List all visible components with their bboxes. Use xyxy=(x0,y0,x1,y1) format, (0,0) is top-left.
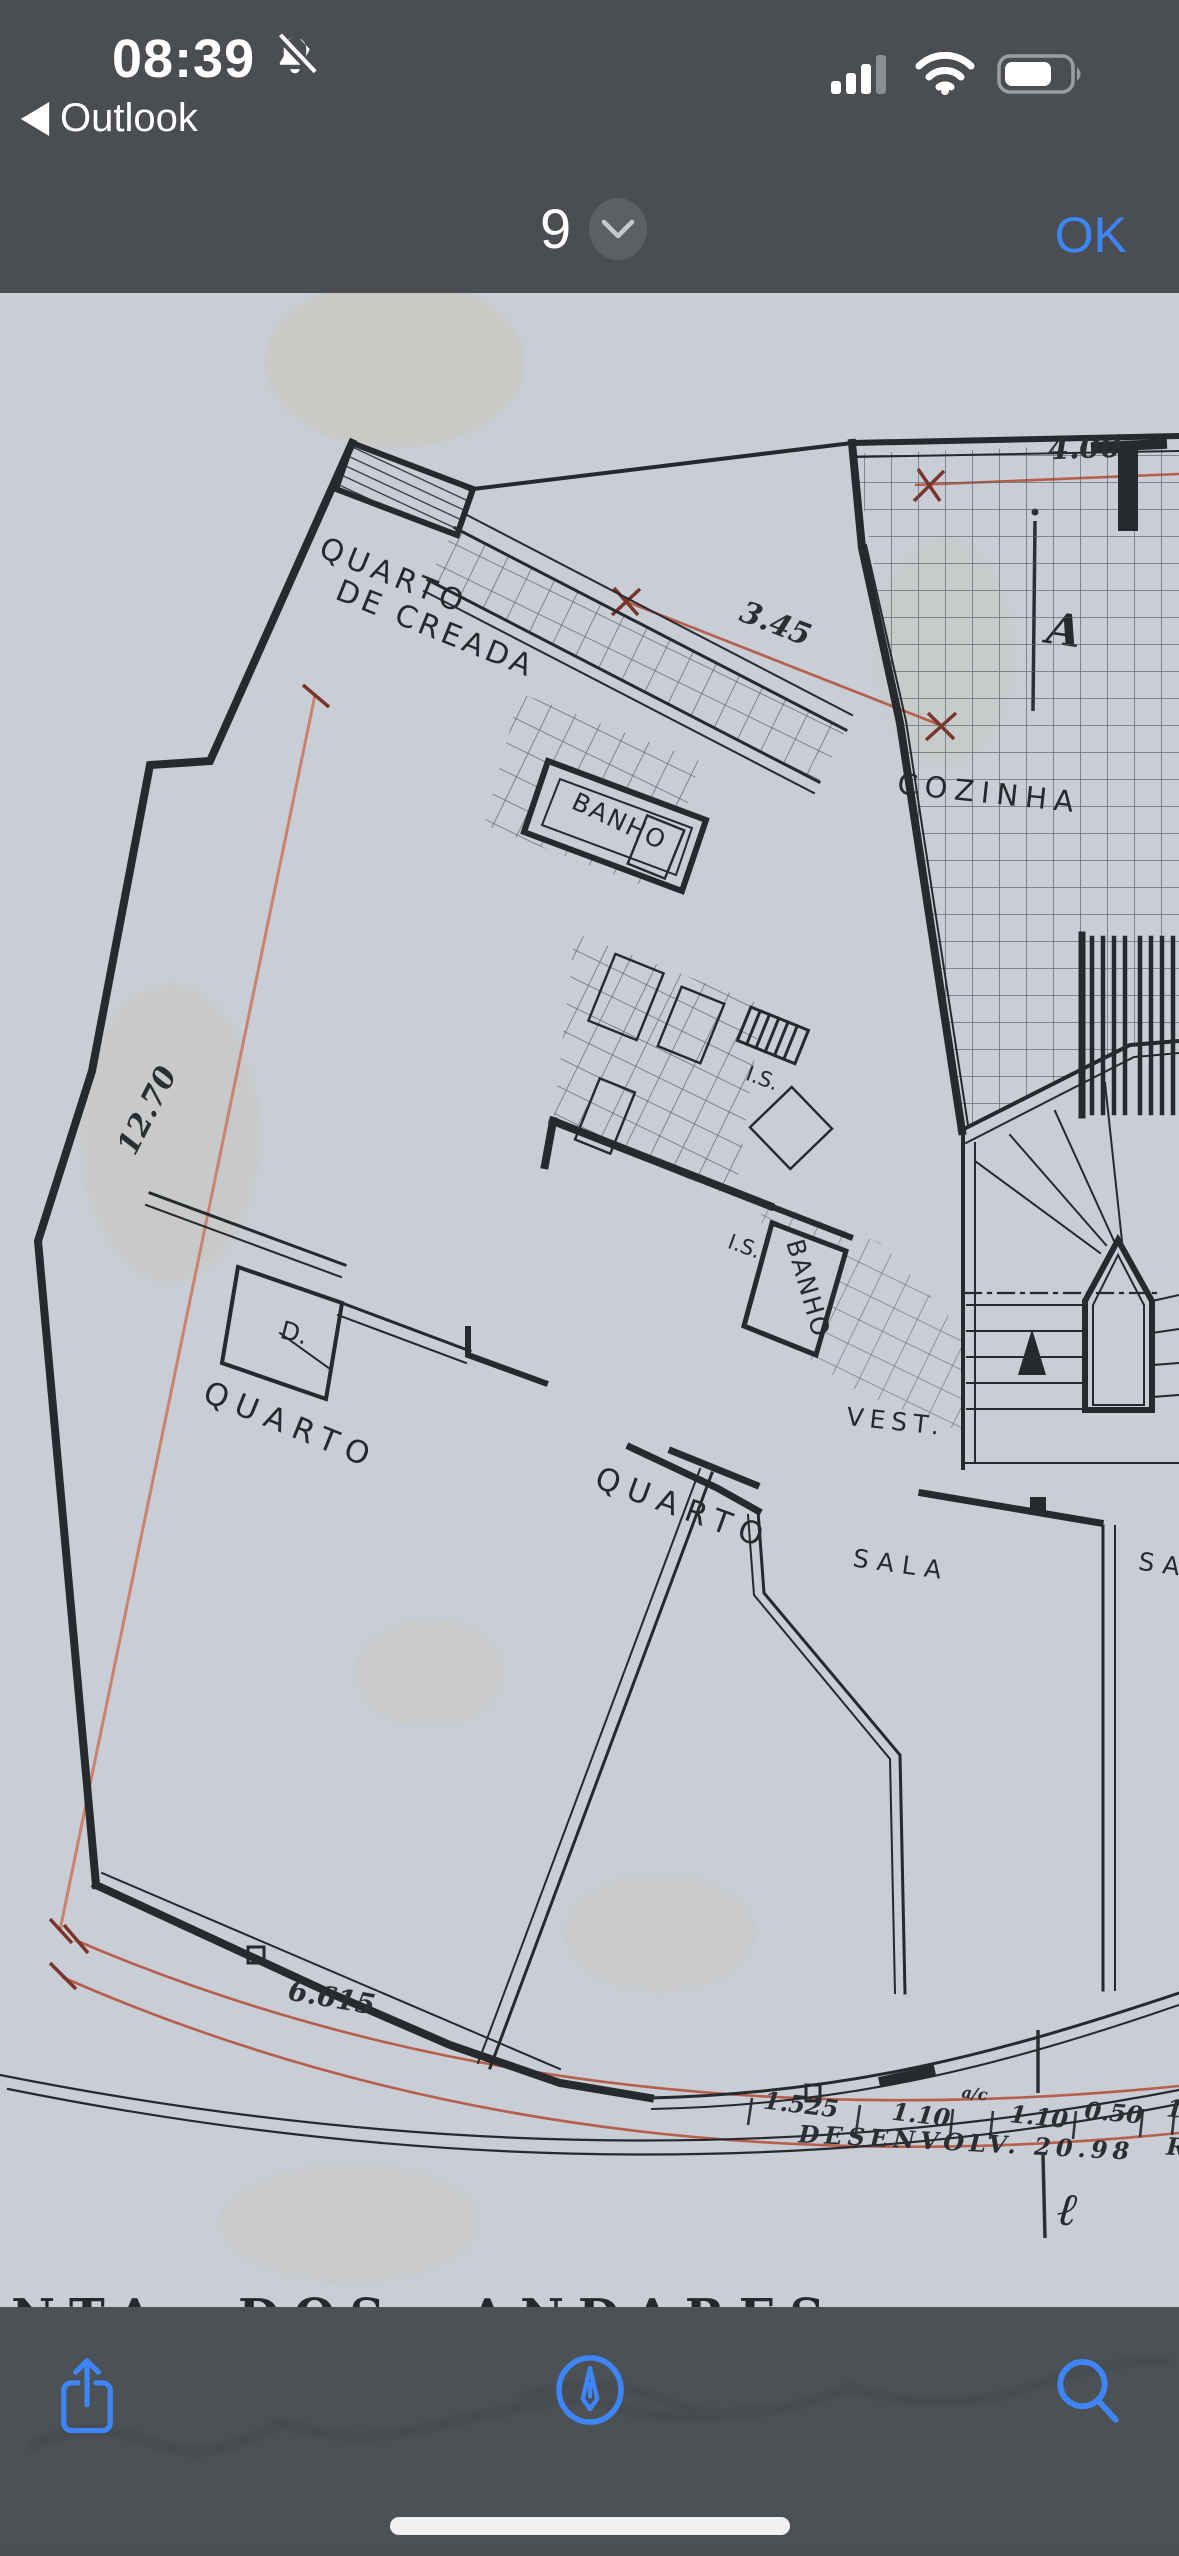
dim-4-00: 4.00 xyxy=(1048,430,1122,468)
markup-button[interactable] xyxy=(554,2355,626,2430)
back-triangle-icon xyxy=(20,102,50,136)
chevron-down-icon xyxy=(601,218,635,240)
clock: 08:39 xyxy=(112,28,255,90)
ok-button[interactable]: OK xyxy=(1055,206,1127,264)
back-app-label: Outlook xyxy=(60,96,198,141)
dim-note-ac: a/c xyxy=(961,2083,989,2105)
page-indicator-group: 9 xyxy=(540,196,647,261)
search-button[interactable] xyxy=(1052,2355,1124,2432)
bell-slash-icon xyxy=(269,31,321,88)
floor-plan-image[interactable]: A ℓ xyxy=(0,293,1179,2307)
drawing-title: PLANTA DOS ANDARES xyxy=(0,2289,838,2307)
dim-1-10-b: 1.10 xyxy=(1008,2099,1069,2134)
share-button[interactable] xyxy=(56,2355,118,2444)
page-number: 9 xyxy=(540,196,571,261)
wifi-icon xyxy=(915,52,975,96)
iphone-screen: 08:39 Outlook xyxy=(0,0,1179,2556)
dim-0-50: 0.50 xyxy=(1083,2096,1144,2130)
dim-edge-1: 1 xyxy=(1165,2093,1179,2123)
status-right xyxy=(831,52,1089,96)
dim-edge-letter: R xyxy=(1165,2131,1179,2161)
back-to-app[interactable]: Outlook xyxy=(20,96,198,141)
search-icon xyxy=(1052,2355,1124,2427)
markup-pen-icon xyxy=(554,2355,626,2425)
floor-plan-drawing: A ℓ xyxy=(0,293,1179,2307)
page-dropdown-button[interactable] xyxy=(589,198,647,260)
status-left: 08:39 xyxy=(112,28,321,90)
home-indicator[interactable] xyxy=(390,2517,790,2535)
cellular-signal-icon xyxy=(831,53,893,95)
status-and-nav-bar: 08:39 Outlook xyxy=(0,0,1179,293)
share-icon xyxy=(56,2355,118,2439)
battery-icon xyxy=(997,52,1089,96)
bottom-toolbar xyxy=(0,2307,1179,2556)
